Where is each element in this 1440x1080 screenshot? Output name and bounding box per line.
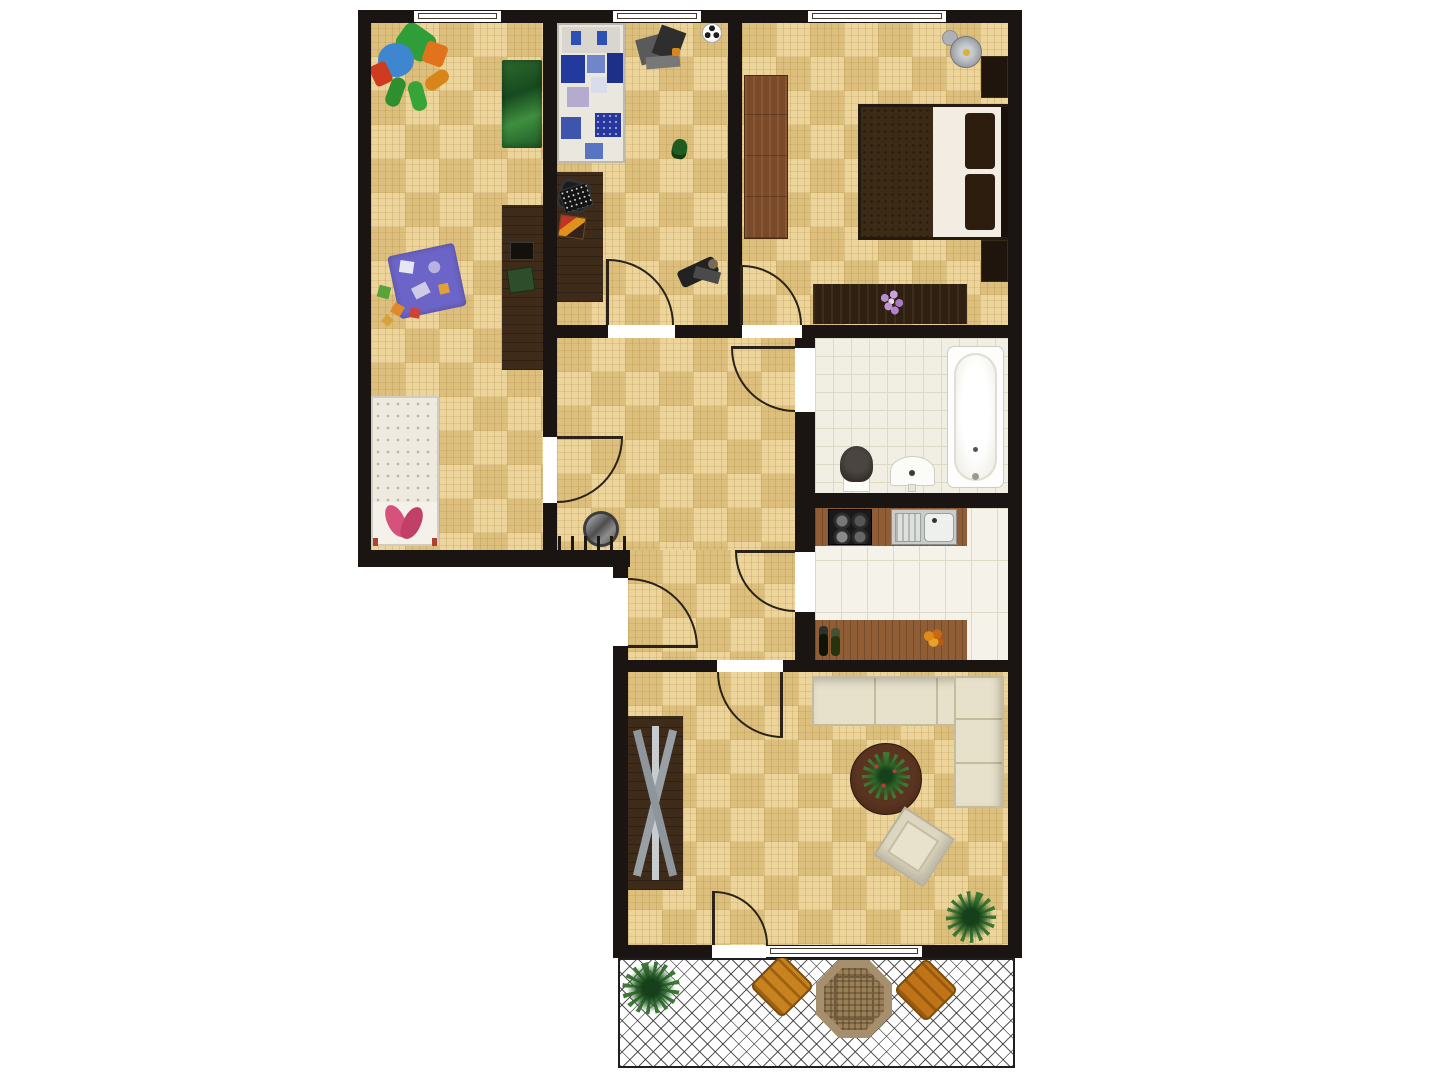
window-children-room — [414, 11, 501, 22]
door-swing-kitchen — [735, 552, 795, 612]
soccer-ball — [702, 23, 722, 43]
door-swing-kids-bedroom — [608, 259, 674, 325]
window-master-bedroom — [808, 11, 946, 22]
window-living-room — [766, 946, 922, 957]
door-opening — [543, 437, 557, 503]
balcony-plant — [616, 955, 685, 1020]
crane-toy — [638, 28, 686, 80]
door-swing-living-room — [717, 672, 783, 738]
kids-bed — [371, 396, 439, 546]
door-leaf — [740, 265, 743, 325]
single-bed — [557, 23, 625, 163]
door-opening — [608, 325, 675, 338]
room-bathroom-floor — [815, 338, 1008, 493]
room-balcony-floor — [618, 958, 1015, 1068]
door-leaf — [628, 645, 698, 648]
plant-toy — [670, 138, 688, 160]
patio-chair — [749, 953, 814, 1018]
dresser — [813, 284, 967, 324]
door-swing-balcony — [714, 891, 768, 945]
door-leaf — [731, 346, 795, 349]
motorbike-toy — [678, 255, 722, 291]
corner-sofa-short — [954, 676, 1004, 808]
door-leaf — [557, 436, 623, 439]
table-plant — [862, 752, 910, 800]
magazine — [558, 214, 587, 239]
wash-basin — [890, 456, 935, 492]
toy-block — [409, 307, 421, 319]
door-swing-bathroom — [731, 348, 795, 412]
door-leaf — [735, 550, 795, 553]
wall — [1008, 10, 1022, 958]
armchair — [873, 806, 955, 887]
patio-chair — [893, 957, 958, 1022]
wine-bottle — [819, 626, 828, 656]
flower-bouquet — [874, 286, 910, 320]
wall — [358, 550, 630, 567]
kitchen-table — [815, 620, 967, 660]
toy-block — [381, 314, 394, 327]
wall — [613, 660, 1022, 672]
wardrobe — [744, 75, 788, 239]
door-swing-children-room — [557, 437, 623, 503]
room-kitchen-floor — [815, 508, 1008, 660]
toy-block — [377, 285, 392, 300]
fruit-bowl — [921, 627, 947, 651]
door-leaf — [606, 259, 609, 325]
floor-lamp — [942, 30, 982, 74]
door-opening — [742, 325, 802, 338]
cooktop — [828, 509, 872, 545]
room-children-floor — [371, 23, 543, 550]
kitchen-counter — [815, 508, 967, 546]
bathtub — [947, 346, 1004, 488]
toilet — [840, 446, 873, 492]
plush-elephant-toy — [372, 27, 454, 111]
wall — [795, 493, 1008, 508]
octagonal-patio-table — [816, 960, 892, 1038]
nightstand — [981, 240, 1008, 282]
door-swing-entrance — [628, 578, 698, 648]
coat-rack — [558, 536, 628, 550]
entrance-door-opening — [613, 578, 628, 646]
door-opening — [795, 348, 815, 412]
toy-shelf — [502, 205, 543, 370]
jungle-rug — [502, 60, 542, 148]
kitchen-sink — [891, 509, 957, 545]
living-room-plant — [939, 884, 1004, 950]
door-swing-master-bedroom — [742, 265, 802, 325]
tv-sideboard — [628, 716, 683, 890]
double-bed — [858, 104, 1008, 240]
door-leaf — [712, 891, 715, 945]
wall — [358, 10, 371, 567]
nightstand — [981, 56, 1008, 98]
door-opening — [795, 552, 815, 612]
room-living-floor — [628, 672, 1008, 945]
window-kids-bedroom — [613, 11, 701, 22]
door-leaf — [780, 672, 783, 738]
door-opening — [717, 660, 783, 672]
floor-plan — [0, 0, 1440, 1080]
wine-bottle — [831, 628, 840, 656]
balcony-door-opening — [712, 945, 766, 958]
